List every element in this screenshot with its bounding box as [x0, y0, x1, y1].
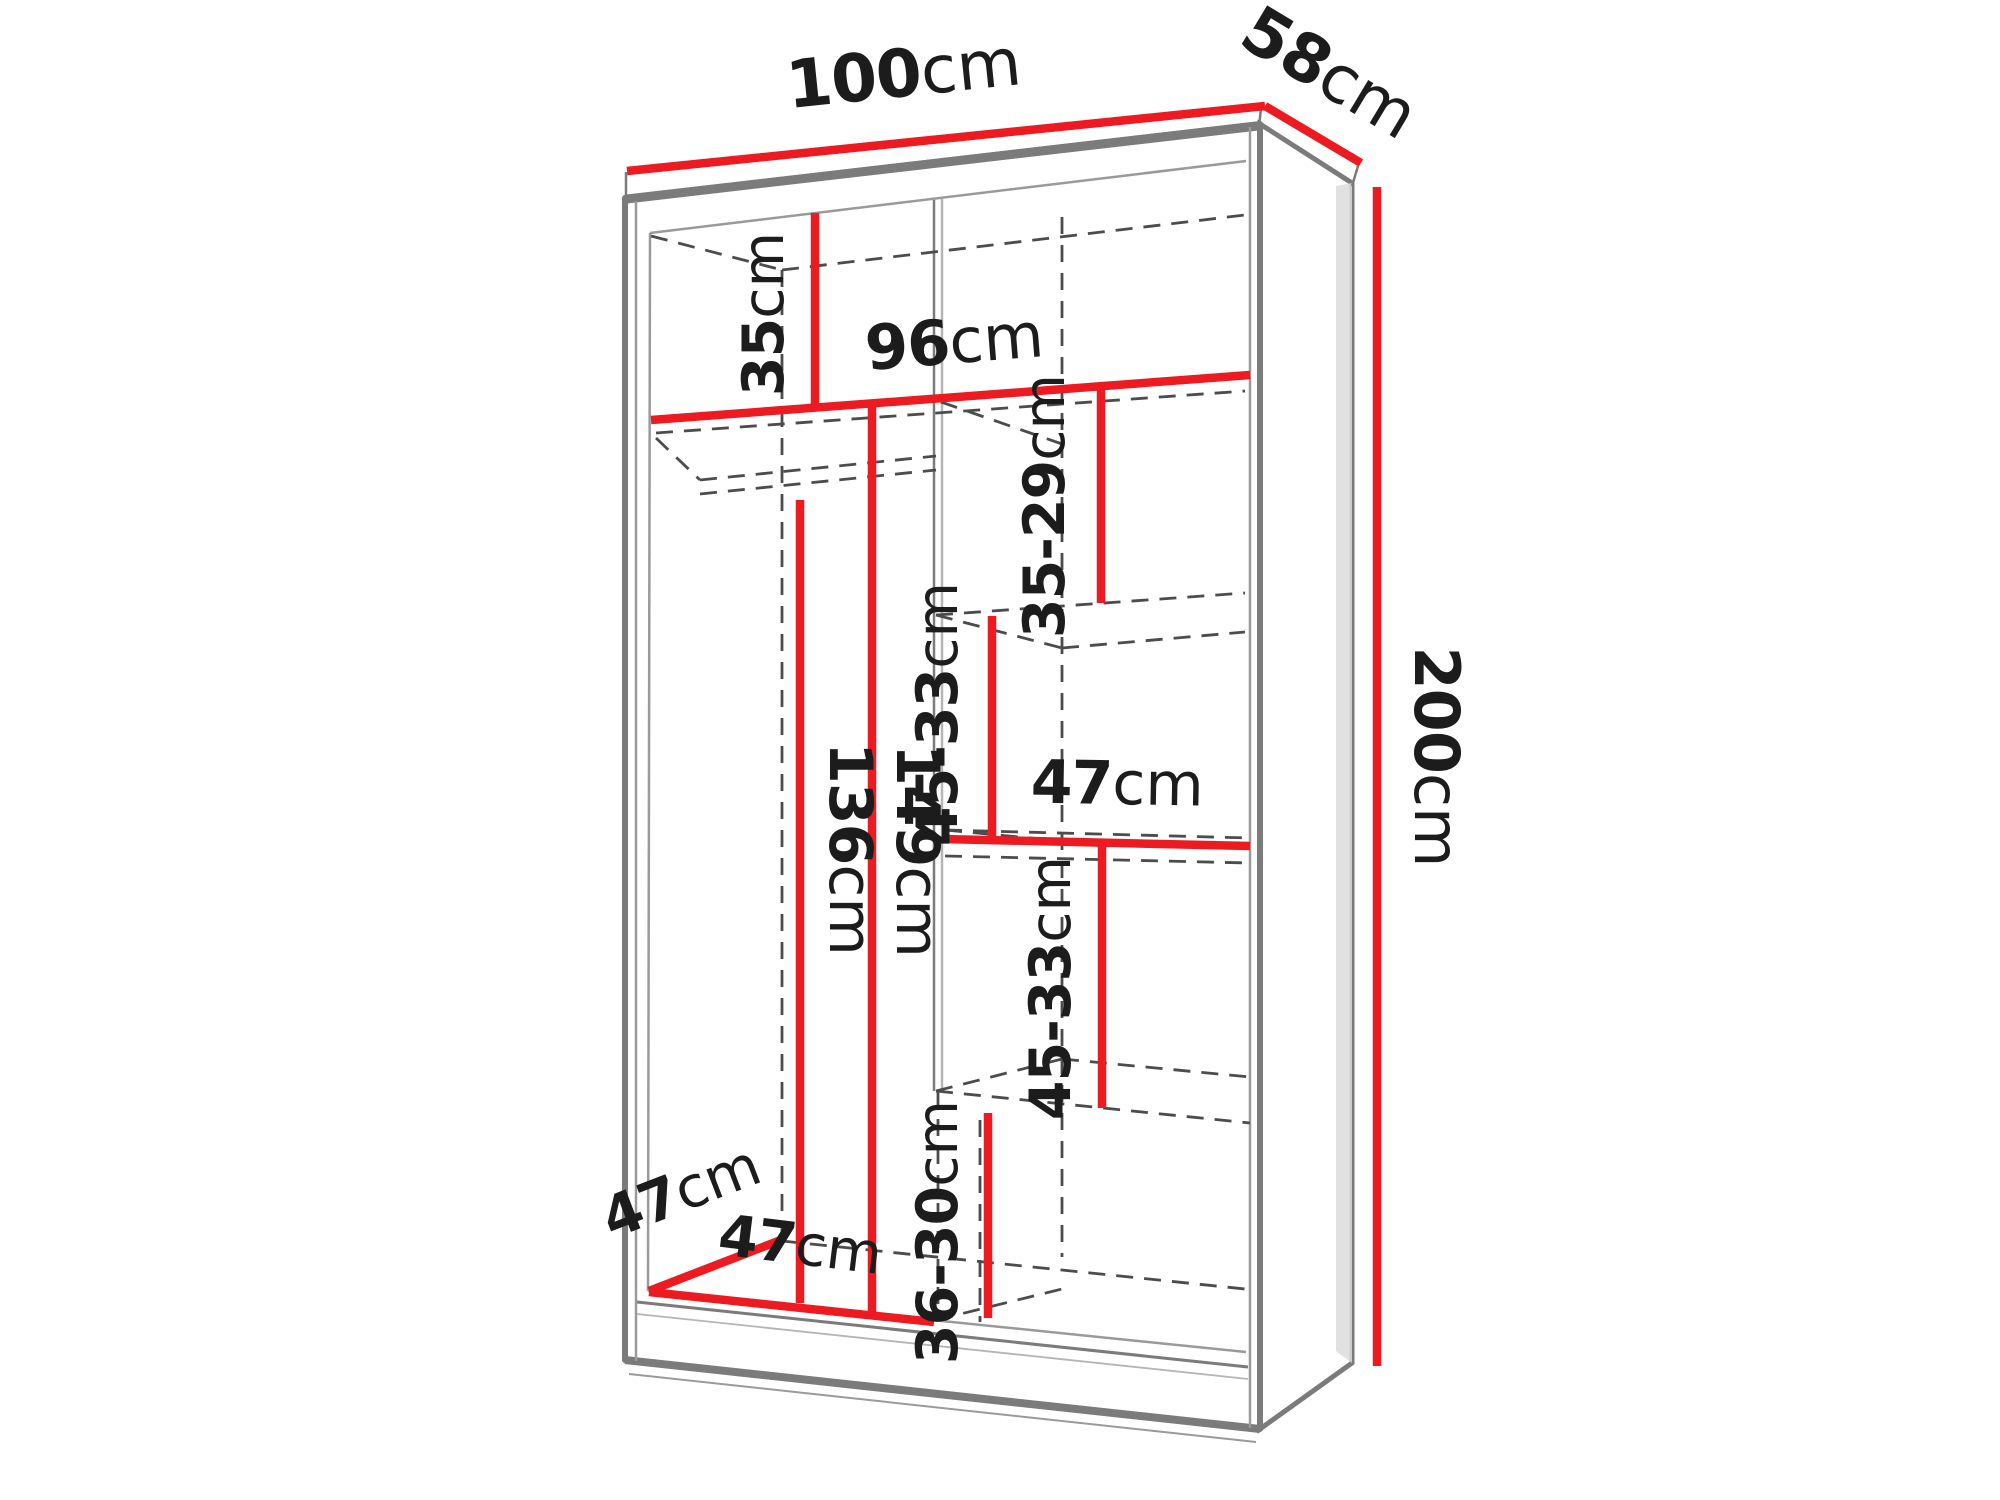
opening-left-edge [648, 233, 650, 1291]
label-right-top-gap: 35-29cm [1012, 374, 1078, 638]
label-overall-width: 100cm [783, 23, 1025, 124]
label-right-bottom-gap: 36-30cm [905, 1100, 971, 1364]
diagram-canvas: 100cm 58cm 200cm 96cm 35cm 35-29cm 45-33… [0, 0, 2000, 1500]
label-right-lower-gap: 45-33cm [1018, 856, 1084, 1120]
hanging-rail-top [700, 456, 936, 480]
shelf-c-back-edge [1062, 1059, 1250, 1077]
bottom-edge-shadow [629, 1374, 1256, 1442]
opening-top-edge [650, 161, 1246, 233]
label-middle-shelf-width: 47cm [1030, 747, 1204, 820]
shelf-a-back-edge [1062, 632, 1245, 648]
side-panel-back-shade [1336, 183, 1352, 1363]
label-overall-height: 200cm [1400, 647, 1473, 868]
wardrobe-dimensions-diagram: 100cm 58cm 200cm 96cm 35cm 35-29cm 45-33… [0, 0, 2000, 1500]
back-wall-top-edge [782, 215, 1245, 270]
shelf-a-front-edge [936, 593, 1245, 615]
label-left-section-height: 149cm [882, 744, 952, 958]
hanging-rail-bottom [700, 470, 936, 494]
middle-shelf-underside [945, 856, 1250, 863]
back-top-corner-tick [1352, 166, 1358, 186]
label-top-compartment-height: 35cm [731, 232, 797, 396]
label-left-section-width: 47cm [715, 1202, 886, 1288]
label-interior-width: 96cm [862, 298, 1046, 385]
rail-bracket [656, 438, 700, 480]
wardrobe-side-face [1260, 124, 1352, 1429]
dim-line-middle-shelf [942, 839, 1250, 846]
label-hanging-clear-height: 136cm [815, 742, 885, 956]
shelf-c-front-edge [936, 1091, 1250, 1123]
